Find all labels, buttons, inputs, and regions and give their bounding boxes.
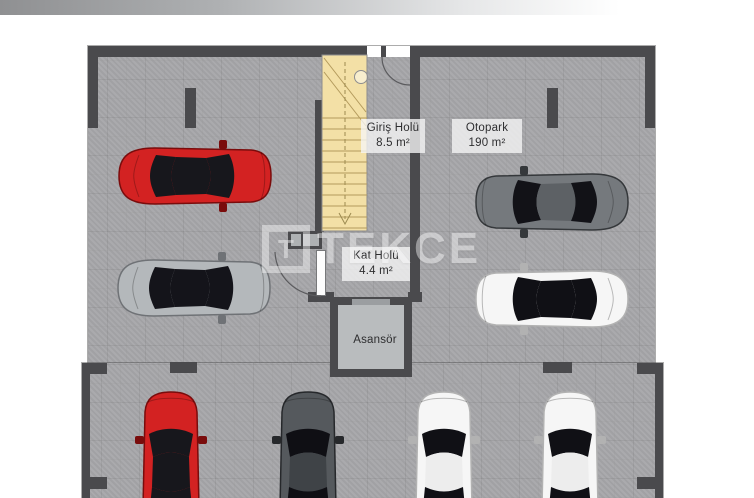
car-mirror-left <box>408 436 417 444</box>
otopark-name: Otopark <box>456 121 518 136</box>
car-mirror-left <box>219 140 227 149</box>
car-mirror-left <box>520 229 528 238</box>
car-roof <box>152 453 190 492</box>
car-mirror-right <box>335 436 344 444</box>
room-label-giris-holu: Giriş Holü 8.5 m² <box>361 119 425 153</box>
car-mirror-left <box>272 436 281 444</box>
car-roof <box>171 269 210 307</box>
floor-plan-canvas: Giriş Holü 8.5 m² Otopark 190 m² Kat Hol… <box>0 0 754 498</box>
car-silver-upper-left <box>116 251 272 325</box>
car-roof <box>537 183 576 221</box>
car-mirror-left <box>135 436 144 444</box>
car-mirror-right <box>520 166 528 175</box>
car-red-lower-1 <box>134 390 208 498</box>
room-label-asansor: Asansör <box>338 331 412 350</box>
giris-holu-name: Giriş Holü <box>365 121 421 136</box>
car-white-upper-right <box>474 262 630 336</box>
car-gray-lower-2 <box>271 390 345 498</box>
car-roof <box>425 453 463 492</box>
room-label-kat-holu: Kat Holü 4.4 m² <box>342 247 410 281</box>
car-mirror-left <box>218 252 226 261</box>
kat-holu-area: 4.4 m² <box>346 264 406 279</box>
car-roof <box>551 453 589 492</box>
car-white-lower-3 <box>407 390 481 498</box>
car-roof <box>172 157 211 195</box>
asansor-name: Asansör <box>342 333 408 348</box>
car-mirror-right <box>198 436 207 444</box>
car-gray-upper-right <box>474 165 630 239</box>
car-mirror-right <box>597 436 606 444</box>
giris-holu-area: 8.5 m² <box>365 136 421 151</box>
room-label-otopark: Otopark 190 m² <box>452 119 522 153</box>
car-mirror-left <box>520 326 528 335</box>
car-white-lower-4 <box>533 390 607 498</box>
car-roof <box>537 280 576 318</box>
car-mirror-left <box>534 436 543 444</box>
car-red-upper-left <box>117 139 273 213</box>
car-mirror-right <box>218 315 226 324</box>
kat-holu-name: Kat Holü <box>346 249 406 264</box>
otopark-area: 190 m² <box>456 136 518 151</box>
car-mirror-right <box>219 203 227 212</box>
car-mirror-right <box>520 263 528 272</box>
car-roof <box>289 453 327 492</box>
car-mirror-right <box>471 436 480 444</box>
